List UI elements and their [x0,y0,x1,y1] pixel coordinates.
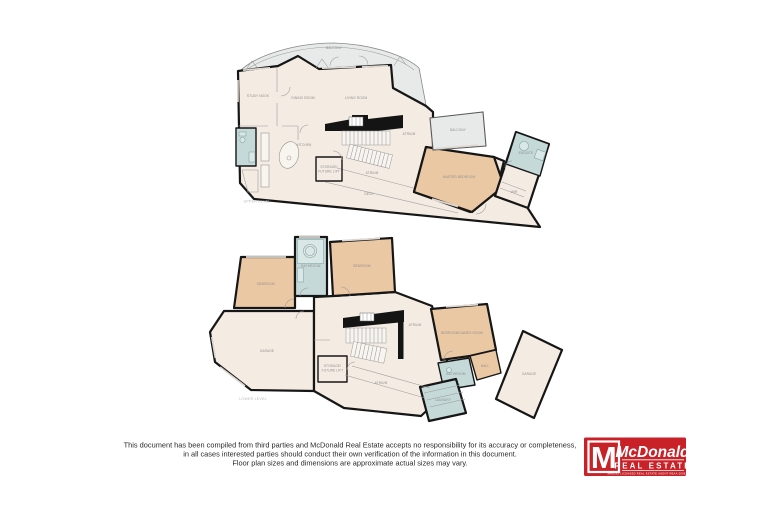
room-label-hall: HALL [481,364,490,368]
room-label-garage-single: GARAGE [522,372,536,376]
disclaimer-line-3: Floor plan sizes and dimensions are appr… [232,459,467,468]
floorplan-canvas: BALCONY STUDY NOOK DINING ROOM LIVING RO… [0,0,768,512]
kitchen-bench [261,165,269,187]
room-label-atrium-hall: ATRIUM [409,323,422,327]
room-label-bathroom-lower: BATHROOM [446,372,465,376]
room-label-garage-main: GARAGE [260,349,274,353]
disclaimer-text: This document has been compiled from thi… [124,441,577,468]
room-label-dining: DINING ROOM [291,96,315,100]
logo-fine-print: MREINZ LICENSED REAL ESTATE AGENT REAA 2… [608,472,699,476]
disclaimer-line-1: This document has been compiled from thi… [124,441,577,450]
logo-name: McDonald [615,444,690,461]
bath-fixture [519,141,528,150]
floorplan-document-page: BALCONY STUDY NOOK DINING ROOM LIVING RO… [0,0,768,512]
logo-m-mark: M [591,440,617,475]
room-label-atrium-band: ATRIUM [366,171,379,175]
upper-level-caption: UPPER LEVEL [244,200,271,204]
room-label-wir: WIR [511,190,518,194]
room-label-balcony-top: BALCONY [326,46,343,50]
room-label-bathroom-top: BATHROOM [301,264,320,268]
room-label-balcony-right: BALCONY [450,128,467,132]
vanity-fixture [249,152,255,162]
room-label-master: MASTER BEDROOM [443,175,476,179]
lower-floorplan: BEDROOM BATHROOM BEDROOM GARAGE STORAGE/… [210,237,562,421]
toilet-fixture [239,132,246,136]
room-label-bedroom-left: BEDROOM [257,282,275,286]
room-label-laundry: LAUNDRY [435,398,452,402]
logo-subtitle: REAL ESTATE [614,462,691,471]
room-label-storage1: STORAGE/ [320,165,337,169]
room-label-storage1-lower: STORAGE/ [324,364,341,368]
toilet-fixture [240,137,245,142]
room-label-storage2-lower: FUTURE LIFT [322,368,344,372]
room-label-living: LIVING ROOM [345,96,368,100]
room-label-bed-games: BEDROOM/GAMES ROOM [441,331,483,335]
vanity-fixture [298,268,304,282]
disclaimer-line-2: in all cases interested parties should c… [183,450,517,459]
kitchen-bench [261,133,269,161]
room-label-bedroom-right: BEDROOM [353,264,371,268]
lower-level-caption: LOWER LEVEL [239,397,267,401]
mcdonald-real-estate-logo: M McDonald REAL ESTATE MREINZ LICENSED R… [584,438,698,477]
room-label-storage2: FUTURE LIFT [318,169,340,173]
room-label-atrium-stair: ATRIUM [403,132,416,136]
room-label-atrium-lower: ATRIUM [375,381,388,385]
room-label-study: STUDY NOOK [247,94,270,98]
room-label-deck-band: DECK [364,192,374,196]
room-label-ensuite: ENSUITE [519,151,534,155]
upper-floorplan: BALCONY STUDY NOOK DINING ROOM LIVING RO… [236,43,549,227]
room-label-kitchen: KITCHEN [297,143,312,147]
